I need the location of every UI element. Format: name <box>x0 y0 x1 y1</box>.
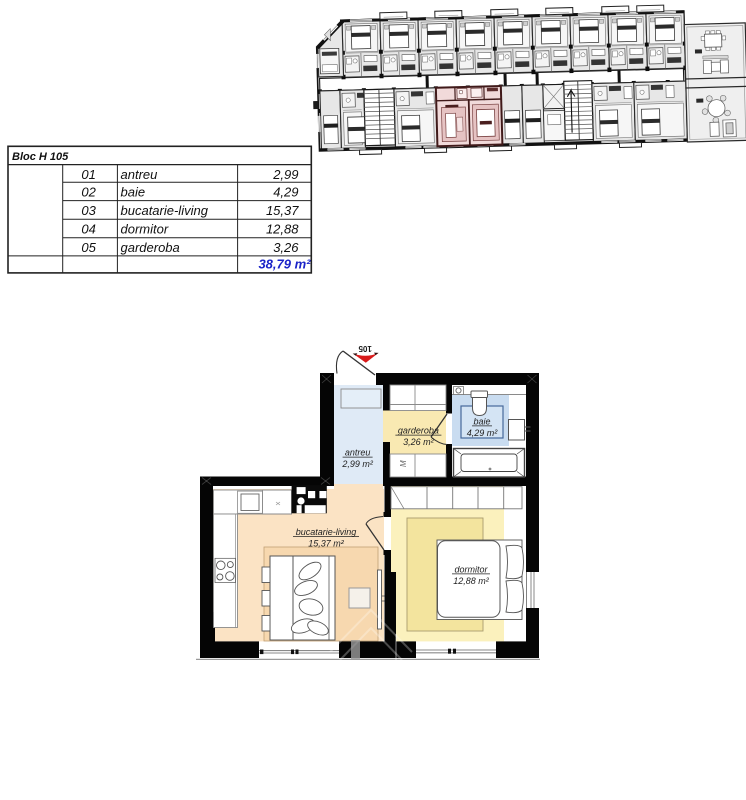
svg-text:antreu: antreu <box>121 167 158 182</box>
svg-text:garderoba: garderoba <box>398 426 439 436</box>
svg-text:04: 04 <box>81 222 95 237</box>
svg-text:05: 05 <box>81 240 96 255</box>
svg-text:4,29: 4,29 <box>273 185 298 200</box>
svg-text:105: 105 <box>358 344 372 353</box>
svg-text:12,88 m²: 12,88 m² <box>453 576 490 586</box>
svg-text:dormitor: dormitor <box>454 564 488 574</box>
svg-text:antreu: antreu <box>345 448 371 458</box>
svg-text:bucatarie-living: bucatarie-living <box>121 203 209 218</box>
svg-text:dormitor: dormitor <box>121 222 169 237</box>
svg-text:03: 03 <box>81 203 96 218</box>
svg-text:15,37: 15,37 <box>266 203 299 218</box>
svg-text:01: 01 <box>81 167 95 182</box>
svg-text:garderoba: garderoba <box>121 240 180 255</box>
svg-text:02: 02 <box>81 185 96 200</box>
svg-text:38,79 m²: 38,79 m² <box>258 257 311 272</box>
svg-text:3,26 m²: 3,26 m² <box>403 437 435 447</box>
svg-text:bucatarie-living: bucatarie-living <box>296 527 357 537</box>
svg-text:2,99 m²: 2,99 m² <box>341 459 374 469</box>
svg-text:3,26: 3,26 <box>273 240 299 255</box>
svg-text:12,88: 12,88 <box>266 222 299 237</box>
svg-text:15,37 m²: 15,37 m² <box>308 538 345 548</box>
svg-text:2,99: 2,99 <box>272 167 298 182</box>
svg-text:baie: baie <box>473 416 490 426</box>
svg-text:baie: baie <box>121 185 146 200</box>
svg-text:4,29 m²: 4,29 m² <box>467 428 499 438</box>
svg-text:Bloc H 105: Bloc H 105 <box>12 151 69 163</box>
svg-text:M: M <box>399 460 408 467</box>
